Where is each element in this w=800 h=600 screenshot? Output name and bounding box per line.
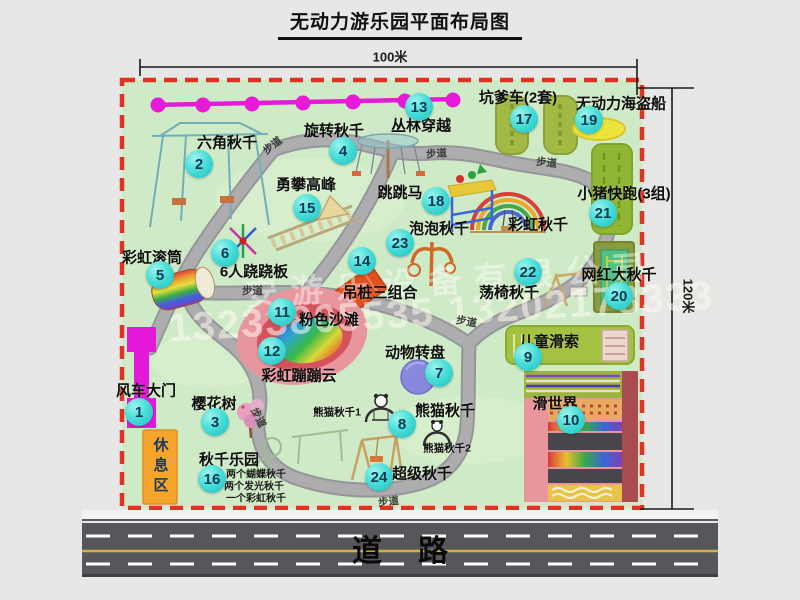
walkway-label-3: 步道 [535, 154, 557, 171]
label-rainbow-bounce-cloud: 彩虹蹦蹦云 [261, 365, 336, 386]
label-rainbow-swing: 彩虹秋千 [508, 214, 568, 235]
slide-world-icon [524, 371, 638, 502]
badge-11: 11 [268, 298, 296, 326]
badge-19: 19 [575, 106, 603, 134]
label-hexagon-swing: 六角秋千 [197, 132, 257, 153]
badge-5: 5 [146, 261, 174, 289]
road-label: 道路 [316, 526, 484, 570]
badge-20: 20 [605, 282, 633, 310]
label-kengdie-car: 坑爹车(2套) [479, 87, 557, 108]
width-dimension-label: 100米 [373, 47, 408, 66]
label-rest-area: 休息区 [150, 437, 171, 497]
badge-17: 17 [510, 105, 538, 133]
badge-3: 3 [201, 408, 229, 436]
badge-15: 15 [293, 194, 321, 222]
label-super-swing: 超级秋千 [392, 463, 452, 484]
badge-4: 4 [329, 137, 357, 165]
swing-note-3: 一个彩虹秋千 [226, 490, 286, 505]
badge-24: 24 [365, 463, 393, 491]
badge-1: 1 [125, 398, 153, 426]
walkway-label-7: 步道 [377, 493, 399, 510]
badge-23: 23 [386, 229, 414, 257]
badge-13: 13 [405, 93, 433, 121]
label-rotating-swing: 旋转秋千 [304, 120, 364, 141]
walkway-label-2: 步道 [426, 145, 448, 161]
badge-22: 22 [514, 258, 542, 286]
badge-18: 18 [422, 187, 450, 215]
playground-layout-image: 无动力游乐园平面布局图 100米 120米 [0, 0, 800, 600]
label-panda-swing-2: 熊猫秋千2 [423, 441, 471, 456]
badge-21: 21 [589, 199, 617, 227]
badge-9: 9 [514, 343, 542, 371]
label-panda-swing-1: 熊猫秋千1 [313, 405, 361, 420]
badge-12: 12 [258, 337, 286, 365]
label-pink-beach: 粉色沙滩 [299, 309, 359, 330]
badge-6: 6 [211, 239, 239, 267]
label-jumping-horse: 跳跳马 [377, 182, 422, 203]
label-climbing-peak: 勇攀高峰 [276, 174, 336, 195]
label-windmill-gate: 风车大门 [116, 380, 176, 401]
badge-16: 16 [198, 465, 226, 493]
height-dimension-label: 120米 [680, 279, 699, 314]
badge-7: 7 [425, 359, 453, 387]
page-title: 无动力游乐园平面布局图 [278, 7, 522, 40]
badge-8: 8 [388, 410, 416, 438]
label-hanging-post-combo: 吊桩三组合 [342, 282, 417, 303]
label-piggy-run: 小猪快跑(3组) [577, 183, 670, 204]
label-bubble-swing: 泡泡秋千 [409, 218, 469, 239]
label-panda-swing: 熊猫秋千 [415, 400, 475, 421]
badge-2: 2 [185, 150, 213, 178]
walkway-label-4: 步道 [242, 283, 263, 298]
badge-10: 10 [557, 406, 585, 434]
badge-14: 14 [348, 247, 376, 275]
